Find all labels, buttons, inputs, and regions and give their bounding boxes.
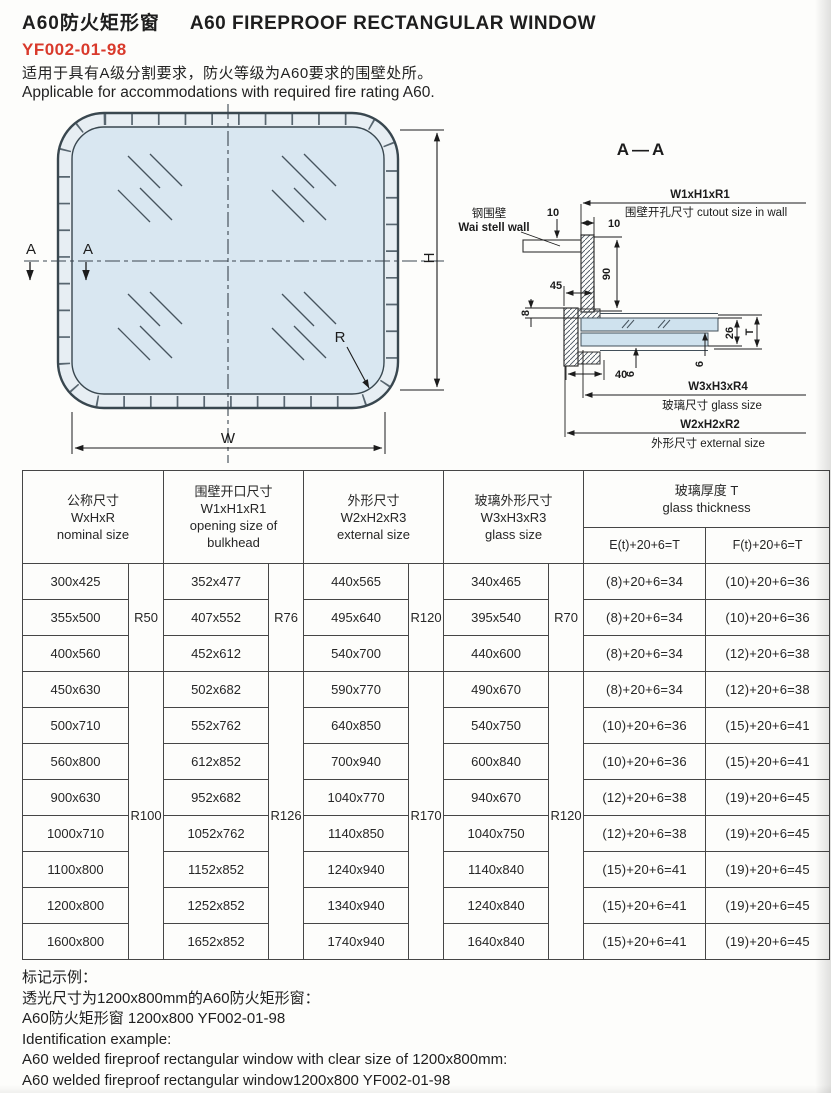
thickness-f-cell: (19)+20+6=45 <box>706 924 830 960</box>
glass-size-cell: 940x670 <box>444 780 549 816</box>
external-size-cell: 495x640 <box>304 600 409 636</box>
front-view: A A H W R <box>24 104 446 463</box>
glass-clamp-bottom <box>578 352 600 364</box>
scan-edge-shade <box>815 0 831 1093</box>
dim-26: 26 <box>724 327 736 339</box>
table-row: 300x425R50352x477R76440x565R120340x465R7… <box>23 564 830 600</box>
external-size-cell: 1740x940 <box>304 924 409 960</box>
footer-line: A60防火矩形窗 1200x800 YF002-01-98 <box>22 1009 507 1030</box>
thickness-f-cell: (12)+20+6=38 <box>706 636 830 672</box>
section-marker-label-2: A <box>83 241 93 258</box>
glass-size-cell: 1140x840 <box>444 852 549 888</box>
radius-cell: R76 <box>269 564 304 672</box>
opening-size-cell: 552x762 <box>164 708 269 744</box>
radius-cell: R120 <box>549 672 584 960</box>
nominal-size-cell: 400x560 <box>23 636 129 672</box>
col-header-thickness-f: F(t)+20+6=T <box>706 528 830 564</box>
footer-line: Identification example: <box>22 1030 507 1051</box>
glass-size-cell: 490x670 <box>444 672 549 708</box>
cutout-code: W1xH1xR1 <box>670 189 730 201</box>
glass-size-cell: 1640x840 <box>444 924 549 960</box>
thickness-e-cell: (12)+20+6=38 <box>584 816 706 852</box>
external-size-cell: 540x700 <box>304 636 409 672</box>
dim-10-top: 10 <box>547 207 559 219</box>
dim-8: 8 <box>520 310 532 316</box>
radius-cell: R50 <box>129 564 164 672</box>
col-header-thickness: 玻璃厚度 T glass thickness <box>584 471 830 528</box>
nominal-size-cell: 500x710 <box>23 708 129 744</box>
glass-size-cell: 440x600 <box>444 636 549 672</box>
glass-size-cell: 340x465 <box>444 564 549 600</box>
radius-cell: R170 <box>409 672 444 960</box>
glass-size-cell: 1040x750 <box>444 816 549 852</box>
dim-6a: 6 <box>625 371 637 377</box>
radius-cell: R120 <box>409 564 444 672</box>
opening-size-cell: 407x552 <box>164 600 269 636</box>
dim-10-ext <box>581 204 594 236</box>
nominal-size-cell: 560x800 <box>23 744 129 780</box>
thickness-e-cell: (15)+20+6=41 <box>584 924 706 960</box>
thickness-e-cell: (8)+20+6=34 <box>584 636 706 672</box>
nominal-size-cell: 1600x800 <box>23 924 129 960</box>
wall-label-en: Wai stell wall <box>458 222 529 234</box>
opening-size-cell: 1152x852 <box>164 852 269 888</box>
external-size-cell: 1140x850 <box>304 816 409 852</box>
nominal-size-cell: 300x425 <box>23 564 129 600</box>
identification-example: 标记示例： 透光尺寸为1200x800mm的A60防火矩形窗： A60防火矩形窗… <box>22 968 507 1091</box>
table-row: 450x630R100502x682R126590x770R170490x670… <box>23 672 830 708</box>
scan-bottom-shade <box>0 1085 831 1093</box>
nominal-size-cell: 1000x710 <box>23 816 129 852</box>
cutout-label: 围壁开孔尺寸 cutout size in wall <box>625 205 787 219</box>
wall-label-zh: 钢围壁 <box>472 206 507 220</box>
dim-10-side: 10 <box>608 218 620 230</box>
footer-line: A60 welded fireproof rectangular window … <box>22 1050 507 1071</box>
thickness-e-cell: (15)+20+6=41 <box>584 852 706 888</box>
thickness-f-cell: (19)+20+6=45 <box>706 852 830 888</box>
external-size-cell: 1040x770 <box>304 780 409 816</box>
thickness-e-cell: (10)+20+6=36 <box>584 708 706 744</box>
external-label: 外形尺寸 external size <box>651 436 765 450</box>
glass-code: W3xH3xR4 <box>688 381 748 393</box>
steel-wall-plate <box>523 240 581 252</box>
dim-t: T <box>744 328 756 335</box>
radius-cell: R100 <box>129 672 164 960</box>
dim-6b: 6 <box>694 361 706 367</box>
opening-size-cell: 1252x852 <box>164 888 269 924</box>
nominal-size-cell: 1200x800 <box>23 888 129 924</box>
radius-cell: R126 <box>269 672 304 960</box>
glass-label: 玻璃尺寸 glass size <box>662 398 762 412</box>
thickness-f-cell: (12)+20+6=38 <box>706 672 830 708</box>
thickness-f-cell: (19)+20+6=45 <box>706 780 830 816</box>
col-header-thickness-e: E(t)+20+6=T <box>584 528 706 564</box>
opening-size-cell: 1652x852 <box>164 924 269 960</box>
opening-size-cell: 352x477 <box>164 564 269 600</box>
thickness-e-cell: (8)+20+6=34 <box>584 564 706 600</box>
thickness-e-cell: (8)+20+6=34 <box>584 672 706 708</box>
external-code: W2xH2xR2 <box>680 419 739 431</box>
col-header-nominal: 公称尺寸 WxHxR nominal size <box>23 471 164 564</box>
frame-outer-bar <box>564 308 578 366</box>
thickness-e-cell: (15)+20+6=41 <box>584 888 706 924</box>
radius-cell: R70 <box>549 564 584 672</box>
external-size-cell: 440x565 <box>304 564 409 600</box>
dim-90: 90 <box>601 268 613 280</box>
opening-size-cell: 1052x762 <box>164 816 269 852</box>
external-size-cell: 640x850 <box>304 708 409 744</box>
thickness-e-cell: (12)+20+6=38 <box>584 780 706 816</box>
radius-label: R <box>335 329 346 346</box>
col-header-glass: 玻璃外形尺寸 W3xH3xR3 glass size <box>444 471 584 564</box>
glass-size-cell: 540x750 <box>444 708 549 744</box>
nominal-size-cell: 900x630 <box>23 780 129 816</box>
nominal-size-cell: 1100x800 <box>23 852 129 888</box>
thickness-f-cell: (15)+20+6=41 <box>706 744 830 780</box>
footer-line: 标记示例： <box>22 968 507 989</box>
external-size-cell: 590x770 <box>304 672 409 708</box>
nominal-size-cell: 355x500 <box>23 600 129 636</box>
thickness-e-cell: (8)+20+6=34 <box>584 600 706 636</box>
h-dimension-label: H <box>421 253 438 264</box>
thickness-e-cell: (10)+20+6=36 <box>584 744 706 780</box>
footer-line: 透光尺寸为1200x800mm的A60防火矩形窗： <box>22 989 507 1010</box>
external-size-cell: 1340x940 <box>304 888 409 924</box>
dim-45: 45 <box>550 280 562 292</box>
glass-clamp-top <box>578 309 600 318</box>
glass-size-cell: 395x540 <box>444 600 549 636</box>
frame-flange <box>581 235 594 312</box>
glass-pane-lower <box>581 333 708 346</box>
document-page: A60防火矩形窗A60 FIREPROOF RECTANGULAR WINDOW… <box>0 0 831 1093</box>
opening-size-cell: 452x612 <box>164 636 269 672</box>
glass-size-cell: 1240x840 <box>444 888 549 924</box>
col-header-external: 外形尺寸 W2xH2xR3 external size <box>304 471 444 564</box>
external-size-cell: 1240x940 <box>304 852 409 888</box>
w-dimension-label: W <box>221 430 236 447</box>
glass-pane-upper <box>581 318 718 331</box>
opening-size-cell: 612x852 <box>164 744 269 780</box>
opening-size-cell: 952x682 <box>164 780 269 816</box>
thickness-f-cell: (19)+20+6=45 <box>706 816 830 852</box>
opening-size-cell: 502x682 <box>164 672 269 708</box>
section-title: A—A <box>617 140 668 159</box>
nominal-size-cell: 450x630 <box>23 672 129 708</box>
thickness-f-cell: (10)+20+6=36 <box>706 600 830 636</box>
thickness-f-cell: (19)+20+6=45 <box>706 888 830 924</box>
thickness-f-cell: (15)+20+6=41 <box>706 708 830 744</box>
col-header-opening: 围壁开口尺寸 W1xH1xR1 opening size of bulkhead <box>164 471 304 564</box>
dimension-table: 公称尺寸 WxHxR nominal size 围壁开口尺寸 W1xH1xR1 … <box>22 470 830 960</box>
external-size-cell: 700x940 <box>304 744 409 780</box>
glass-size-cell: 600x840 <box>444 744 549 780</box>
section-view: A—A 钢围壁 Wai stell wall 10 10 W1xH1xR1 围壁… <box>458 140 806 450</box>
thickness-f-cell: (10)+20+6=36 <box>706 564 830 600</box>
section-marker-label-1: A <box>26 241 36 258</box>
